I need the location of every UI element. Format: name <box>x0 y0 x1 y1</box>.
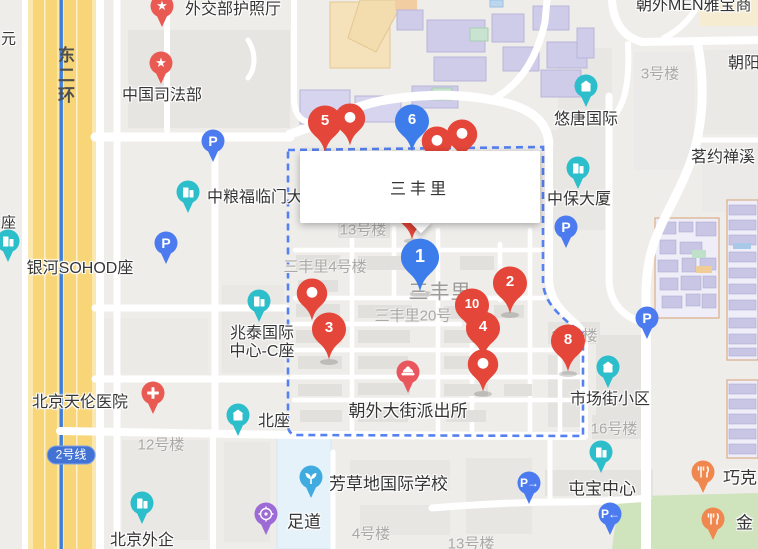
metro-line2-badge[interactable]: 2号线 <box>47 446 96 465</box>
north-block-building-pin[interactable] <box>225 403 251 439</box>
parking-pin-1[interactable]: P <box>200 129 226 165</box>
building-label-4: 4号楼 <box>352 523 390 544</box>
infowindow-title: 三丰里 <box>390 175 450 199</box>
poi-label-tianlun-hospital[interactable]: 北京天伦医院 <box>32 388 128 412</box>
fangcaodi-school-pin[interactable] <box>298 465 324 501</box>
parking-arrow-left-icon: P← <box>597 506 623 522</box>
poi-label-passport-office[interactable]: 外交部护照厅 <box>185 0 281 19</box>
building-label-sanfengli-4: 三丰里4号楼 <box>283 256 366 277</box>
arrow-right-icon: → <box>527 476 538 490</box>
map-viewport[interactable]: 3号楼 13号楼 三丰里4号楼 三丰里 三丰里20号 12号楼 4号楼 13号楼… <box>0 0 758 549</box>
poi-label-galaxy-soho[interactable]: 银河SOHOD座 <box>27 254 134 278</box>
marker-number: 2 <box>491 273 529 290</box>
map-marker-8[interactable]: 8 <box>549 323 587 373</box>
ministry-justice-pin[interactable]: ★ <box>148 51 174 87</box>
parking-icon: P <box>153 234 179 252</box>
restaurant-pin-chocolate[interactable] <box>690 460 716 496</box>
red-pin[interactable] <box>466 348 500 393</box>
infowindow[interactable]: 三丰里 <box>300 151 540 223</box>
parking-letter: P <box>520 476 527 490</box>
building-label-sanfengli-20: 三丰里20号 <box>375 305 452 326</box>
zhaotai-building-pin[interactable] <box>246 289 272 325</box>
foot-spa-pin[interactable] <box>253 502 279 538</box>
restaurant-pin-jin[interactable] <box>700 507 726 543</box>
poi-label-chocolate[interactable]: 巧克 <box>723 464 757 489</box>
parking-pin-4[interactable]: P <box>634 306 660 342</box>
star-icon: ★ <box>148 53 174 72</box>
marker-number: 1 <box>398 246 442 267</box>
poi-label-jin[interactable]: 金 <box>736 509 753 534</box>
marker-number: 6 <box>393 111 431 128</box>
poi-label-zhaotai[interactable]: 兆泰国际中心-C座 <box>230 325 295 361</box>
map-marker-6[interactable]: 6 <box>393 103 431 153</box>
building-label-13-bottom: 13号楼 <box>448 533 495 549</box>
tunbao-building-pin[interactable] <box>588 440 614 476</box>
poi-label-tunbao-center[interactable]: 屯宝中心 <box>568 475 636 500</box>
beijing-fesco-building-pin[interactable] <box>129 491 155 527</box>
building-label-3: 3号楼 <box>641 63 679 84</box>
poi-label-police-station[interactable]: 朝外大街派出所 <box>349 397 468 422</box>
passport-office-pin[interactable]: ★ <box>149 0 175 30</box>
youtang-building-pin[interactable] <box>573 74 599 110</box>
parking-pin-2[interactable]: P <box>153 231 179 267</box>
map-marker-1[interactable]: 1 <box>398 237 442 293</box>
parking-icon: P <box>553 218 579 236</box>
poi-label-fangcaodi-school[interactable]: 芳草地国际学校 <box>329 470 448 495</box>
parking-icon: P <box>634 309 660 327</box>
poi-label-zhaotai-line2: 中心-C座 <box>230 343 295 360</box>
poi-label-north-block[interactable]: 北座 <box>258 407 290 431</box>
map-marker-2[interactable]: 2 <box>491 265 529 315</box>
parking-icon: P <box>200 132 226 150</box>
market-street-building-pin[interactable] <box>595 355 621 391</box>
road-label-east-2nd-ring: 东二环 <box>52 46 77 106</box>
parking-entrance-right-pin[interactable]: P→ <box>516 471 542 507</box>
poi-label-zhaotai-line1: 兆泰国际 <box>230 325 294 342</box>
marker-number: 10 <box>453 296 491 311</box>
poi-label-chaoyang: 朝阳 <box>728 49 758 73</box>
parking-arrow-right-icon: P→ <box>516 475 542 491</box>
zhongbao-building-pin[interactable] <box>565 156 591 192</box>
building-label-12: 12号楼 <box>138 434 185 455</box>
cofco-building-pin[interactable] <box>175 180 201 216</box>
arrow-left-icon: ← <box>608 507 619 521</box>
poi-label-foot-spa[interactable]: 足道 <box>287 508 321 533</box>
parking-entrance-left-pin[interactable]: P← <box>597 502 623 538</box>
star-icon: ★ <box>149 0 175 15</box>
marker-number: 4 <box>464 318 502 335</box>
poi-label-mingyue-chanxi[interactable]: 茗约禅溪 <box>691 143 755 167</box>
poi-label-beijing-fesco[interactable]: 北京外企 <box>110 526 174 549</box>
building-label-16: 16号楼 <box>591 418 638 439</box>
marker-number: 8 <box>549 331 587 348</box>
poi-label-yuan-partial: 元 <box>1 28 16 49</box>
hospital-pin[interactable] <box>140 381 166 417</box>
poi-label-cofco[interactable]: 中粮福临门大 <box>207 183 303 207</box>
map-marker-5[interactable]: 5 <box>306 104 344 154</box>
parking-pin-3[interactable]: P <box>553 215 579 251</box>
marker-number: 5 <box>306 112 344 129</box>
marker-number: 3 <box>310 319 348 336</box>
poi-label-chaowai-men: 朝外MEN雅宝商 <box>636 0 752 15</box>
map-marker-3[interactable]: 3 <box>310 311 348 361</box>
galaxy-soho-building-pin[interactable] <box>0 229 21 265</box>
parking-letter: P <box>601 507 608 521</box>
police-station-pin[interactable] <box>395 360 421 396</box>
